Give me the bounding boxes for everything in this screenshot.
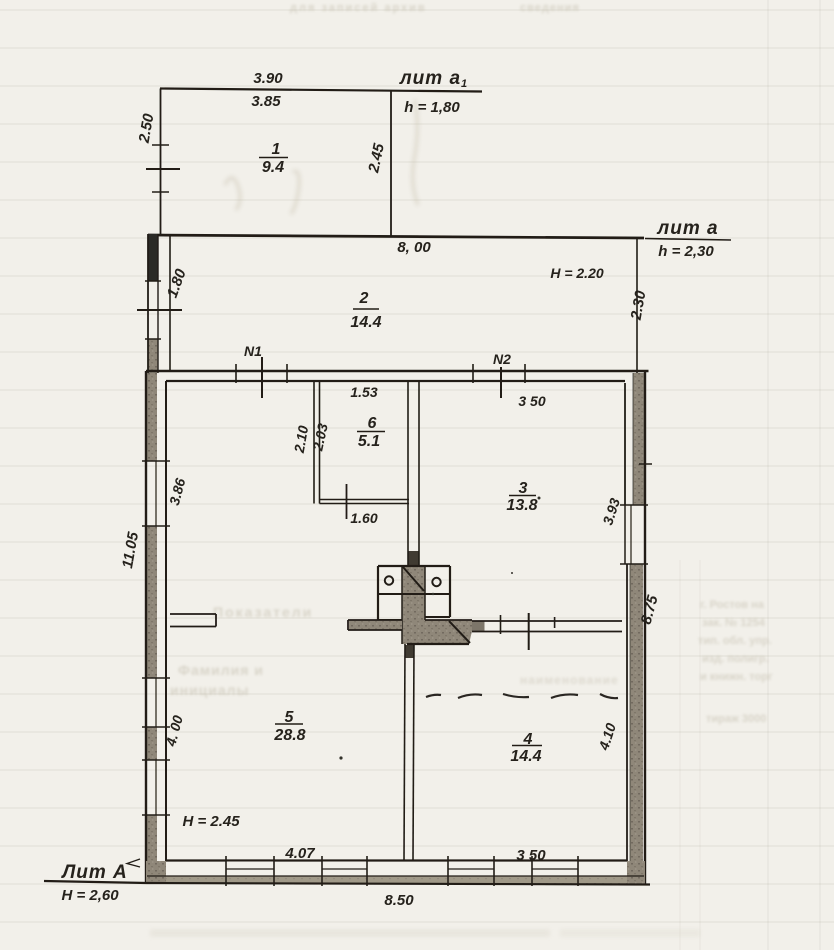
svg-text:Н = 2,60: Н = 2,60 xyxy=(61,887,119,904)
svg-text:1.60: 1.60 xyxy=(350,510,377,526)
svg-text:N1: N1 xyxy=(244,343,262,359)
svg-text:изд. полигр.: изд. полигр. xyxy=(702,653,769,665)
svg-text:h = 2,30: h = 2,30 xyxy=(658,243,714,260)
svg-text:Показатели: Показатели xyxy=(213,604,313,620)
svg-text:5.1: 5.1 xyxy=(358,433,380,450)
svg-text:наименование: наименование xyxy=(520,673,619,687)
svg-text:тип. обл. упр.: тип. обл. упр. xyxy=(698,635,772,647)
svg-text:13.8: 13.8 xyxy=(506,497,537,514)
svg-text:14.4: 14.4 xyxy=(350,314,381,331)
svg-text:h = 1,80: h = 1,80 xyxy=(404,99,460,116)
svg-text:лит а1: лит а1 xyxy=(399,68,468,90)
svg-text:Лит А: Лит А xyxy=(60,862,128,883)
svg-text:Н = 2.45: Н = 2.45 xyxy=(182,813,240,830)
svg-text:28.8: 28.8 xyxy=(273,727,305,744)
svg-text:4.07: 4.07 xyxy=(284,845,315,862)
svg-text:3 50: 3 50 xyxy=(518,393,545,409)
svg-text:тираж 3000: тираж 3000 xyxy=(706,713,766,725)
svg-text:1.53: 1.53 xyxy=(350,384,377,400)
svg-text:3 50: 3 50 xyxy=(516,847,546,864)
svg-text:Фамилия и: Фамилия и xyxy=(178,662,264,678)
svg-text:8.50: 8.50 xyxy=(384,892,414,909)
svg-text:и книжн. торг: и книжн. торг xyxy=(700,671,773,683)
svg-text:3: 3 xyxy=(519,480,528,497)
svg-text:14.4: 14.4 xyxy=(510,748,541,765)
svg-text:8, 00: 8, 00 xyxy=(397,239,431,256)
svg-text:лит а: лит а xyxy=(656,218,718,239)
svg-text:для записей архив: для записей архив xyxy=(290,2,427,14)
svg-text:зак. № 1254: зак. № 1254 xyxy=(702,617,766,629)
svg-text:Н = 2.20: Н = 2.20 xyxy=(550,265,604,281)
svg-text:6: 6 xyxy=(368,415,377,432)
svg-text:г. Ростов на: г. Ростов на xyxy=(700,599,765,611)
svg-text:сведения: сведения xyxy=(520,2,580,14)
svg-text:инициалы: инициалы xyxy=(170,682,250,698)
svg-text:3.90: 3.90 xyxy=(253,70,283,87)
svg-text:2: 2 xyxy=(359,290,369,307)
svg-text:9.4: 9.4 xyxy=(262,159,284,176)
svg-text:N2: N2 xyxy=(493,351,511,367)
svg-text:3.85: 3.85 xyxy=(251,93,281,110)
svg-text:1: 1 xyxy=(272,141,281,158)
